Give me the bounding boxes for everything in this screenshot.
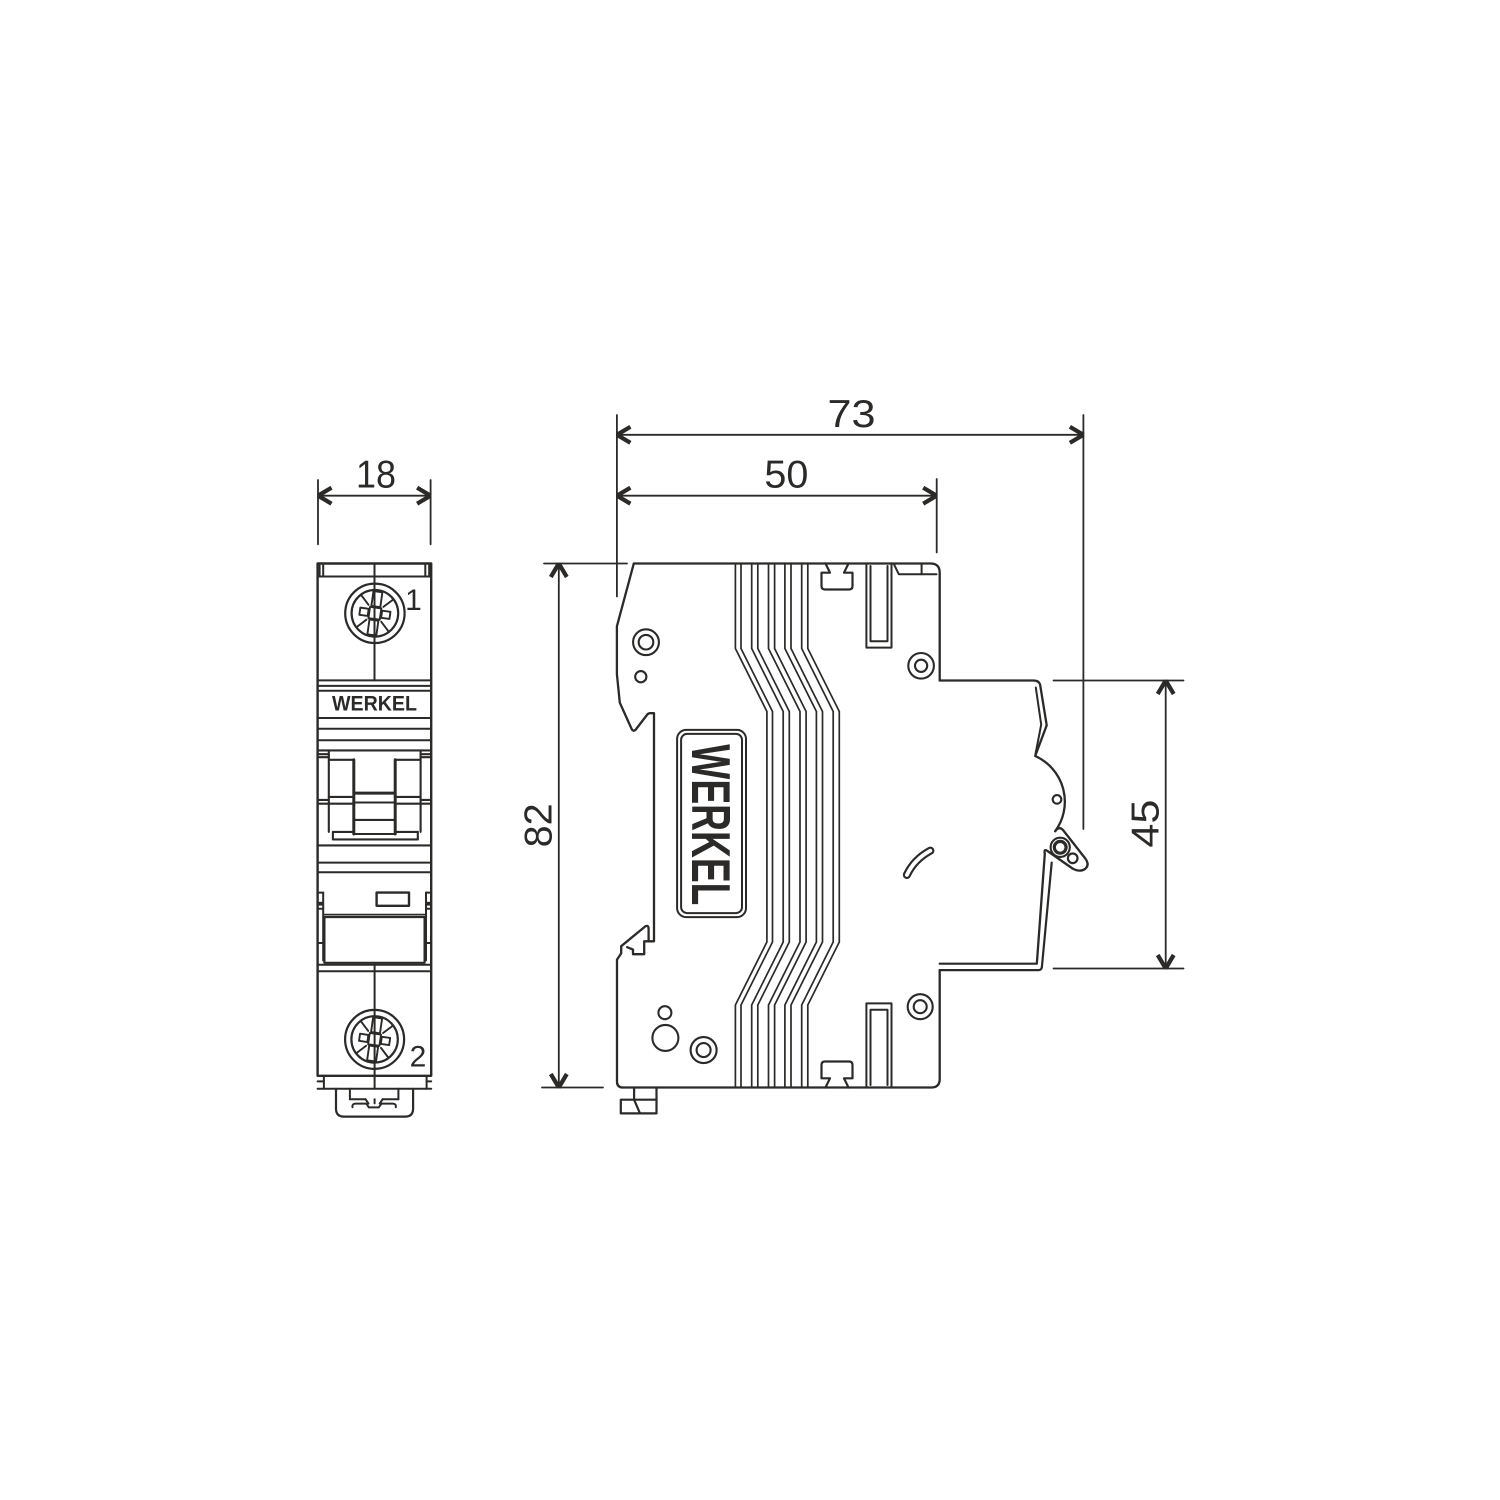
svg-text:WERKEL: WERKEL [680,744,742,905]
svg-text:WERKEL: WERKEL [332,692,417,715]
svg-text:18: 18 [356,454,396,497]
svg-text:82: 82 [518,803,561,847]
svg-text:73: 73 [828,393,876,436]
svg-text:1: 1 [405,584,422,617]
svg-text:50: 50 [764,454,808,497]
svg-text:2: 2 [410,1041,427,1074]
svg-text:45: 45 [1125,800,1168,848]
